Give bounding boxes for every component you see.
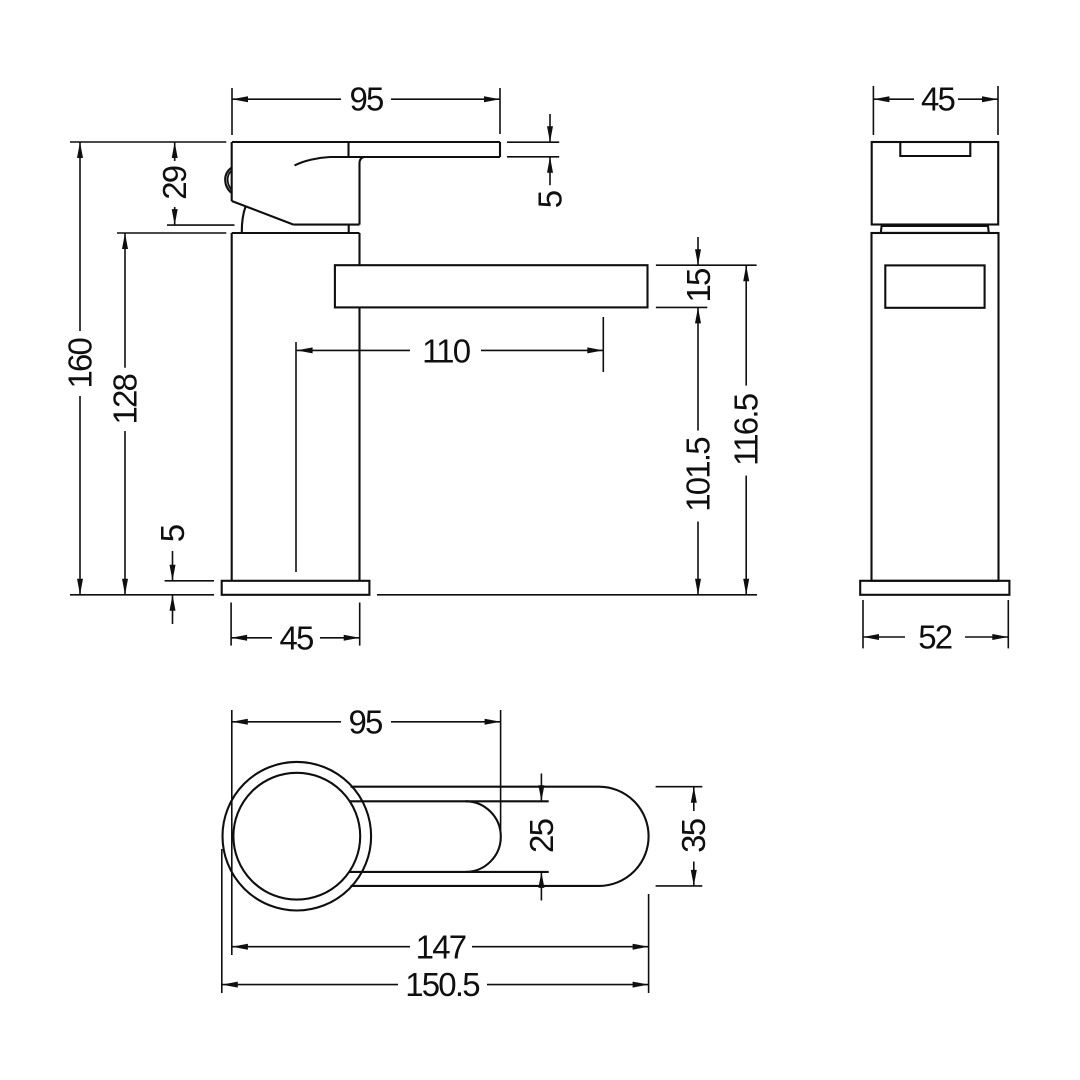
svg-text:160: 160 [62,337,99,388]
svg-text:95: 95 [348,703,382,740]
svg-text:147: 147 [416,929,466,966]
svg-text:95: 95 [349,81,383,118]
svg-text:150.5: 150.5 [405,966,479,1003]
svg-text:45: 45 [921,81,955,118]
svg-text:25: 25 [523,819,560,853]
svg-text:110: 110 [422,332,471,369]
svg-text:101.5: 101.5 [680,438,717,512]
svg-text:45: 45 [279,619,313,656]
svg-text:128: 128 [107,374,144,424]
svg-text:5: 5 [532,191,569,208]
svg-text:15: 15 [680,269,717,303]
svg-text:29: 29 [156,166,193,200]
svg-text:52: 52 [918,619,952,656]
svg-text:5: 5 [154,525,191,542]
svg-text:116.5: 116.5 [728,394,765,466]
svg-text:35: 35 [675,819,712,853]
